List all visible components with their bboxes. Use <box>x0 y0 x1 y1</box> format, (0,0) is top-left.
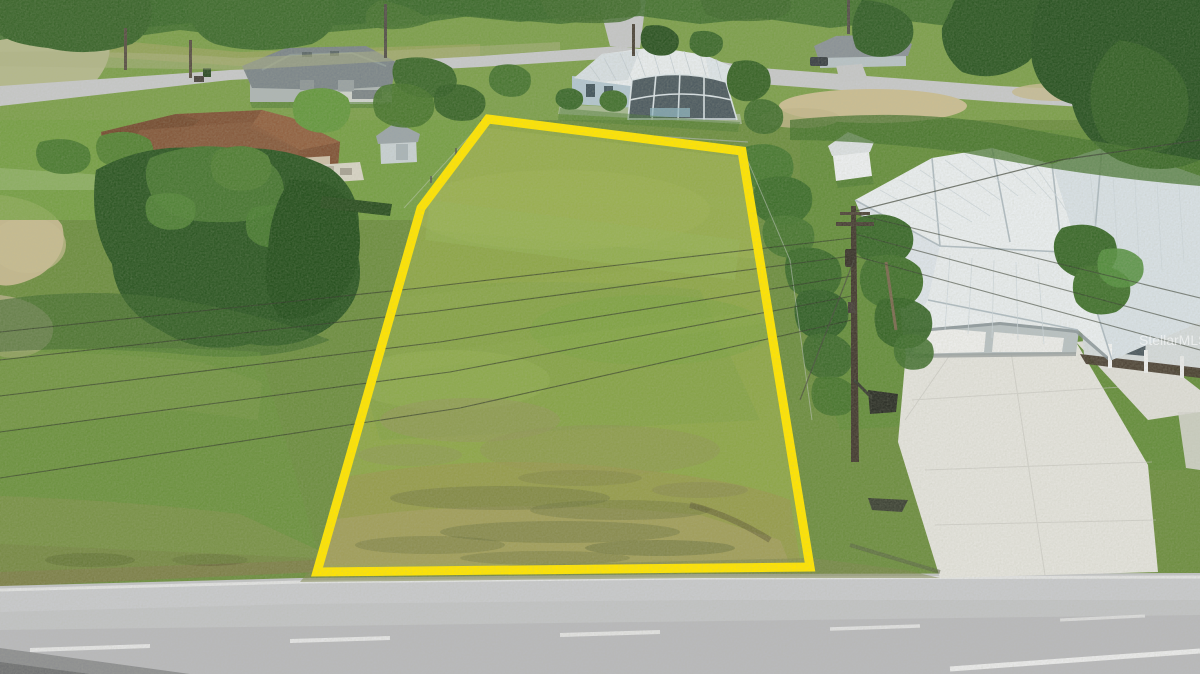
svg-text:StellarMLS: StellarMLS <box>1139 332 1200 348</box>
